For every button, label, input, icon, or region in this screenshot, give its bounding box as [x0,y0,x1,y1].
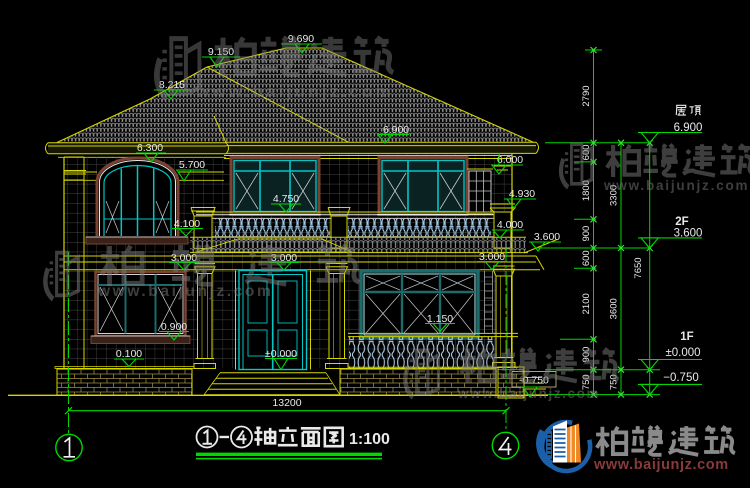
svg-text:3600: 3600 [609,298,620,319]
svg-text:www.baijunjz.com: www.baijunjz.com [593,457,729,473]
svg-text:±0.000: ±0.000 [665,347,700,359]
svg-text:www.baijunjz.com: www.baijunjz.com [603,178,749,193]
svg-text:3.600: 3.600 [534,231,560,243]
svg-text:6.300: 6.300 [137,142,163,154]
svg-text:www.baijunjz.com: www.baijunjz.com [457,386,600,401]
svg-text:7650: 7650 [633,257,644,278]
svg-text:2F: 2F [675,216,688,228]
svg-text:0.100: 0.100 [116,348,142,360]
svg-text:13200: 13200 [272,397,301,409]
svg-text:1F: 1F [680,331,693,343]
svg-text:5.700: 5.700 [179,159,205,171]
svg-text:1:100: 1:100 [349,431,390,448]
svg-text:www.baijunjz.com: www.baijunjz.com [195,82,394,101]
svg-text:600: 600 [581,250,592,266]
svg-text:4.750: 4.750 [273,193,299,205]
svg-text:900: 900 [581,226,592,242]
svg-text:−0.750: −0.750 [663,372,699,384]
svg-text:www.baijunjz.com: www.baijunjz.com [97,283,273,300]
svg-text:6.000: 6.000 [497,154,523,166]
svg-text:4.000: 4.000 [497,219,523,231]
svg-text:4.930: 4.930 [509,188,535,200]
svg-text:2100: 2100 [581,293,592,314]
svg-text:2790: 2790 [581,85,592,106]
